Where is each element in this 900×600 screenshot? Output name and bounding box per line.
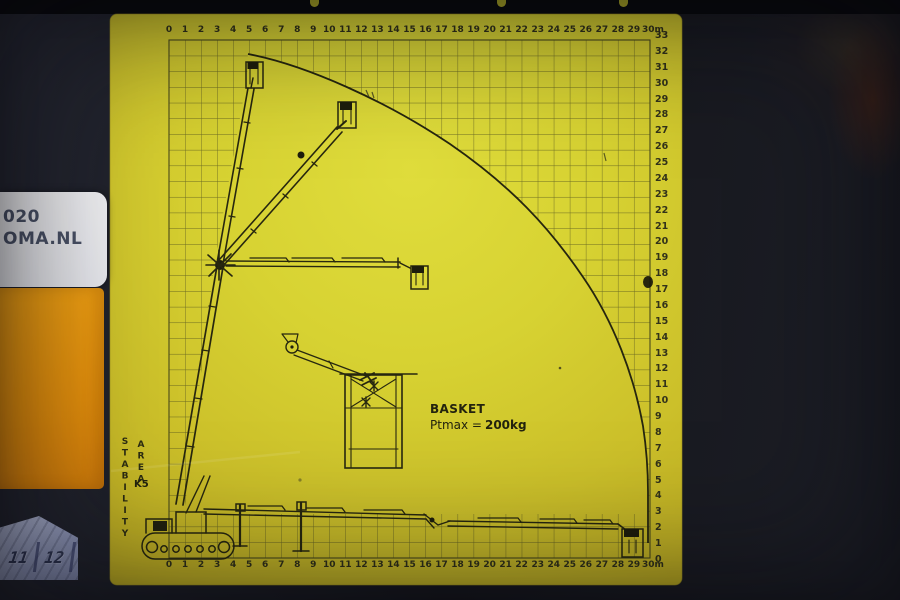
molded-number: 12 [43, 548, 65, 567]
axis-tick-label: 0 [655, 555, 679, 565]
axis-tick-label: 20 [655, 237, 679, 247]
axis-tick-label: 24 [546, 560, 562, 570]
axis-tick-label: 15 [655, 317, 679, 327]
axis-tick-label: 23 [530, 25, 546, 35]
axis-tick-label: 16 [418, 560, 434, 570]
axis-tick-label: 25 [562, 25, 578, 35]
axis-tick-label: 17 [655, 285, 679, 295]
axis-tick-label: 4 [655, 491, 679, 501]
photo-of-crane-range-sticker: 0123456789101112131415161718192021222324… [0, 0, 900, 600]
axis-tick-label: 20 [482, 560, 498, 570]
axis-tick-label: 1 [655, 539, 679, 549]
axis-tick-label: 8 [655, 428, 679, 438]
axis-tick-label: 15 [401, 25, 417, 35]
axis-tick-label: 29 [626, 25, 642, 35]
axis-tick-label: 14 [655, 333, 679, 343]
axis-tick-label: 29 [655, 95, 679, 105]
axis-tick-label: 33 [655, 31, 679, 41]
white-sticker-line1: 020 [0, 206, 107, 228]
axis-tick-label: 6 [257, 25, 273, 35]
axis-tick-label: 21 [655, 222, 679, 232]
axis-tick-label: 28 [610, 25, 626, 35]
axis-tick-label: 10 [321, 560, 337, 570]
axis-tick-label: 6 [655, 460, 679, 470]
basket-icon [248, 62, 259, 69]
axis-tick-label: 15 [401, 560, 417, 570]
axis-tick-label: 27 [594, 560, 610, 570]
ptmax-label: Ptmax = [430, 418, 482, 432]
axis-tick-label: 4 [225, 560, 241, 570]
axis-tick-label: 22 [514, 560, 530, 570]
axis-tick-label: 25 [655, 158, 679, 168]
axis-tick-label: 2 [193, 560, 209, 570]
axis-tick-label: 5 [241, 25, 257, 35]
basket-title: BASKET [430, 401, 527, 417]
axis-bottom-labels: 0123456789101112131415161718192021222324… [161, 560, 658, 570]
axis-tick-label: 27 [655, 126, 679, 136]
axis-tick-label: 7 [655, 444, 679, 454]
axis-right-labels: 3332313029282726252423222120191817161514… [655, 31, 679, 565]
axis-top-labels: 0123456789101112131415161718192021222324… [161, 25, 658, 35]
axis-tick-label: 8 [289, 25, 305, 35]
axis-tick-label: 3 [655, 507, 679, 517]
axis-tick-label: 18 [450, 560, 466, 570]
axis-tick-label: 16 [418, 25, 434, 35]
basket-max-load: Ptmax =200kg [430, 417, 527, 433]
axis-tick-label: 26 [578, 560, 594, 570]
axis-tick-label: 23 [530, 560, 546, 570]
axis-tick-label: 31 [655, 63, 679, 73]
axis-tick-label: 25 [562, 560, 578, 570]
axis-tick-label: 22 [655, 206, 679, 216]
basket-icon [624, 529, 639, 537]
axis-tick-label: 10 [321, 25, 337, 35]
axis-tick-label: 0 [161, 560, 177, 570]
stability-class-label: K5 [134, 479, 149, 490]
axis-tick-label: 5 [241, 560, 257, 570]
basket-icon [340, 102, 352, 110]
molded-divider [33, 542, 40, 572]
axis-tick-label: 29 [626, 560, 642, 570]
axis-tick-label: 23 [655, 190, 679, 200]
axis-tick-label: 0 [161, 25, 177, 35]
axis-tick-label: 14 [385, 560, 401, 570]
axis-tick-label: 28 [610, 560, 626, 570]
axis-tick-label: 8 [289, 560, 305, 570]
axis-tick-label: 20 [482, 25, 498, 35]
axis-tick-label: 17 [434, 25, 450, 35]
axis-tick-label: 28 [655, 110, 679, 120]
axis-tick-label: 12 [655, 364, 679, 374]
axis-tick-label: 13 [369, 560, 385, 570]
axis-tick-label: 7 [273, 560, 289, 570]
axis-tick-label: 26 [655, 142, 679, 152]
axis-tick-label: 5 [655, 476, 679, 486]
molded-number-row: 11 12 [7, 542, 76, 572]
partial-orange-sticker [0, 288, 104, 489]
axis-tick-label: 11 [337, 25, 353, 35]
axis-tick-label: 21 [498, 25, 514, 35]
axis-tick-label: 11 [337, 560, 353, 570]
basket-icon [412, 266, 424, 273]
working-range-diagram [0, 0, 900, 600]
axis-tick-label: 14 [385, 25, 401, 35]
partial-white-sticker: 020 OMA.NL [0, 192, 107, 287]
axis-tick-label: 17 [434, 560, 450, 570]
axis-tick-label: 18 [450, 25, 466, 35]
axis-tick-label: 2 [193, 25, 209, 35]
axis-tick-label: 18 [655, 269, 679, 279]
axis-tick-label: 1 [177, 560, 193, 570]
axis-tick-label: 12 [353, 25, 369, 35]
axis-tick-label: 9 [655, 412, 679, 422]
axis-tick-label: 16 [655, 301, 679, 311]
basket-load-annotation: BASKET Ptmax =200kg [430, 401, 527, 433]
axis-tick-label: 13 [369, 25, 385, 35]
axis-tick-label: 30 [655, 79, 679, 89]
white-sticker-line2: OMA.NL [0, 228, 107, 250]
axis-tick-label: 10 [655, 396, 679, 406]
axis-tick-label: 12 [353, 560, 369, 570]
axis-tick-label: 19 [466, 25, 482, 35]
axis-tick-label: 2 [655, 523, 679, 533]
axis-tick-label: 3 [209, 560, 225, 570]
axis-tick-label: 19 [655, 253, 679, 263]
axis-tick-label: 6 [257, 560, 273, 570]
molded-number: 11 [8, 548, 30, 567]
axis-tick-label: 4 [225, 25, 241, 35]
axis-tick-label: 13 [655, 349, 679, 359]
molded-divider [69, 542, 76, 572]
axis-tick-label: 9 [305, 560, 321, 570]
axis-tick-label: 21 [498, 560, 514, 570]
axis-tick-label: 32 [655, 47, 679, 57]
ptmax-value: 200kg [485, 418, 527, 432]
axis-tick-label: 7 [273, 25, 289, 35]
axis-tick-label: 27 [594, 25, 610, 35]
axis-tick-label: 11 [655, 380, 679, 390]
axis-tick-label: 1 [177, 25, 193, 35]
stability-label: STABILITY [120, 437, 130, 541]
axis-tick-label: 24 [655, 174, 679, 184]
axis-tick-label: 9 [305, 25, 321, 35]
axis-tick-label: 26 [578, 25, 594, 35]
axis-tick-label: 3 [209, 25, 225, 35]
axis-tick-label: 24 [546, 25, 562, 35]
axis-tick-label: 22 [514, 25, 530, 35]
axis-tick-label: 19 [466, 560, 482, 570]
